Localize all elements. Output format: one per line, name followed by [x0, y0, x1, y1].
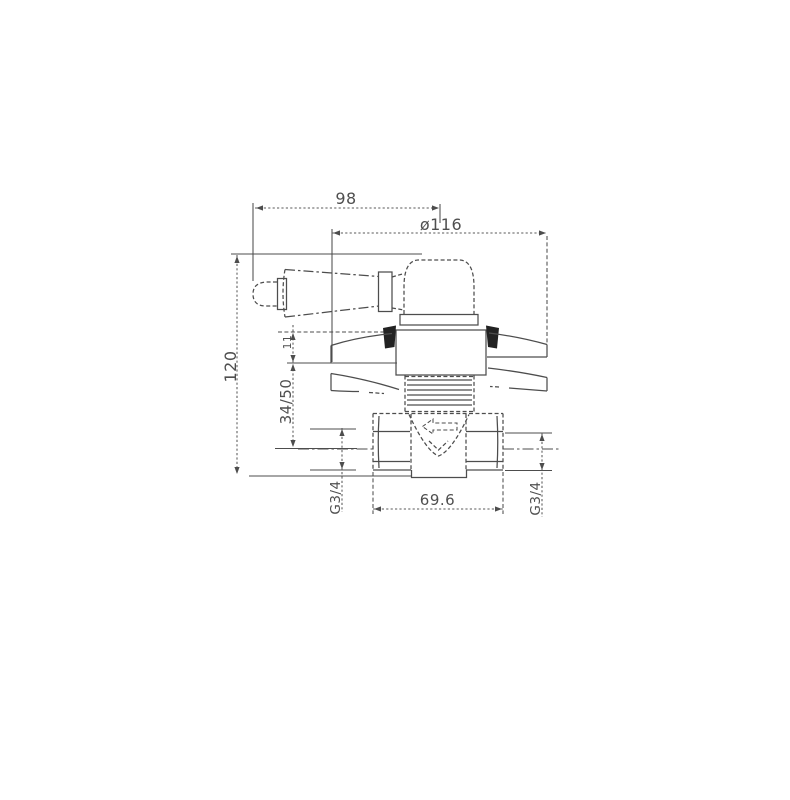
wall-plate-hub [396, 330, 486, 375]
seal-right [486, 326, 499, 349]
dim-label-overall-height: 120 [221, 350, 240, 382]
threaded-stem [405, 376, 474, 414]
technical-drawing-valve: 98 ø116 120 11 34/50 69.6 G3/4 G3/4 [0, 0, 790, 800]
hex-nut-left [373, 416, 411, 470]
cartridge-cap [400, 260, 478, 325]
seal-left [383, 326, 396, 349]
extension-lines [231, 203, 552, 514]
dim-label-plate-offset: 11 [282, 335, 294, 349]
escutcheon-wing-lower-right [488, 368, 547, 391]
dim-label-handle-length: 98 [335, 189, 356, 208]
dim-label-mounting-depth: 34/50 [277, 379, 295, 425]
dim-label-plate-diameter: ø116 [420, 215, 462, 234]
handle-base-collar [379, 272, 405, 312]
handle-collar [278, 279, 287, 310]
dim-label-thread-left: G3/4 [328, 480, 344, 514]
dim-label-body-width: 69.6 [420, 491, 455, 509]
dim-label-thread-right: G3/4 [528, 481, 544, 515]
flow-arrow-icon [423, 419, 458, 434]
hex-nut-right [466, 416, 503, 470]
handle-lever [283, 270, 379, 318]
escutcheon-wing-upper-left [331, 334, 392, 363]
escutcheon-wing-lower-left [331, 374, 399, 394]
handle-knob [253, 282, 277, 306]
